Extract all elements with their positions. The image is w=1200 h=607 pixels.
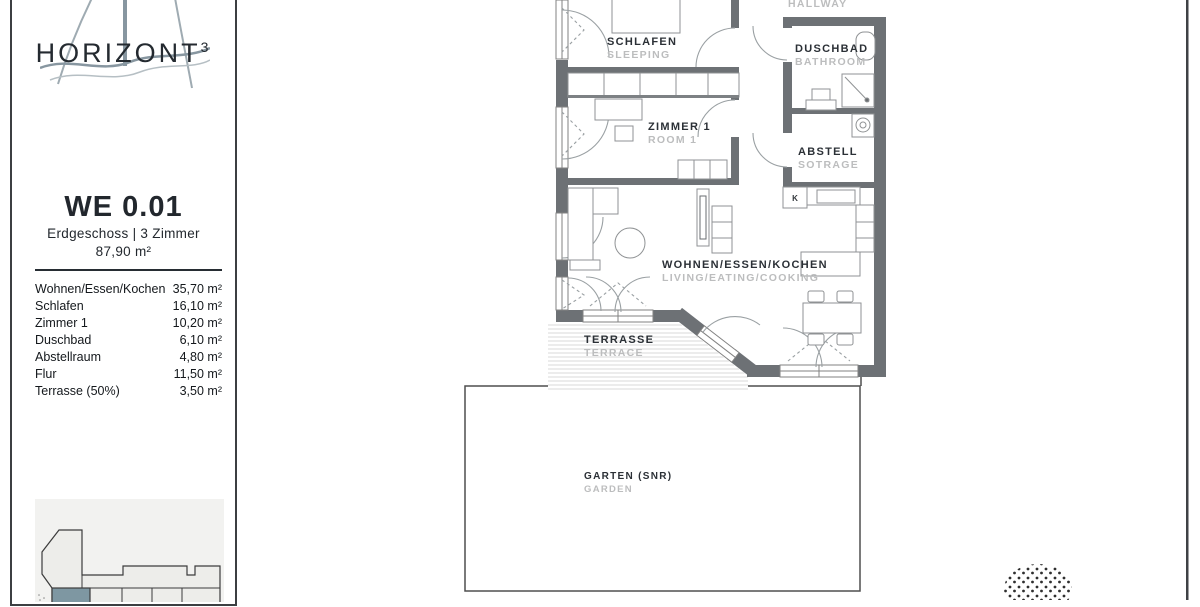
room-name-en: ROOM 1 — [648, 134, 711, 147]
room-label: Abstellraum — [35, 349, 101, 366]
room-label-garten: GARTEN (SNR) GARDEN — [584, 470, 672, 496]
shower-icon — [842, 74, 874, 107]
room-label: Wohnen/Essen/Kochen — [35, 281, 165, 298]
room-name-en: TERRACE — [584, 347, 654, 360]
brand-exponent: 3 — [201, 39, 212, 55]
room-label-duschbad: DUSCHBAD BATHROOM — [795, 43, 868, 69]
building-footprint-icon — [35, 499, 224, 602]
table-row: Terrasse (50%) 3,50 m² — [35, 383, 222, 400]
room-name-en: GARDEN — [584, 483, 672, 496]
bed-icon — [612, 0, 680, 33]
kitchen-counter-icon — [807, 187, 874, 252]
table-row: Wohnen/Essen/Kochen 35,70 m² — [35, 281, 222, 298]
room-label-wohnen: WOHNEN/ESSEN/KOCHEN LIVING/EATING/COOKIN… — [662, 259, 828, 285]
dining-table-icon — [803, 303, 861, 333]
unit-total-area: 87,90 m² — [12, 244, 235, 259]
room-name-en: SLEEPING — [607, 49, 677, 62]
washbasin-icon — [806, 89, 836, 110]
table-row: Zimmer 1 10,20 m² — [35, 315, 222, 332]
room-label-schlafen: SCHLAFEN SLEEPING — [607, 36, 677, 62]
room-area: 4,80 m² — [180, 349, 222, 366]
bed-icon — [595, 99, 642, 120]
table-row: Abstellraum 4,80 m² — [35, 349, 222, 366]
room-area: 3,50 m² — [180, 383, 222, 400]
room-label: Terrasse (50%) — [35, 383, 120, 400]
unit-subtitle: Erdgeschoss | 3 Zimmer — [12, 226, 235, 241]
room-area: 11,50 m² — [174, 366, 222, 383]
room-name-de: TERRASSE — [584, 334, 654, 347]
room-name-de: ABSTELL — [798, 146, 859, 159]
room-name-en: LIVING/EATING/COOKING — [662, 272, 828, 285]
brand-text: HORIZONT — [36, 38, 201, 68]
room-label-terrasse: TERRASSE TERRACE — [584, 334, 654, 360]
room-label-hallway: HALLWAY — [788, 0, 847, 11]
room-label: Duschbad — [35, 332, 91, 349]
washing-machine-icon — [852, 114, 874, 137]
room-label: Schlafen — [35, 298, 84, 315]
room-name-de: ZIMMER 1 — [648, 121, 711, 134]
room-label-abstell: ABSTELL SOTRAGE — [798, 146, 859, 172]
table-row: Schlafen 16,10 m² — [35, 298, 222, 315]
table-row: Duschbad 6,10 m² — [35, 332, 222, 349]
cabinet-icon — [712, 206, 732, 253]
room-area: 6,10 m² — [180, 332, 222, 349]
window-icon — [556, 0, 568, 310]
room-name-en: HALLWAY — [788, 0, 847, 11]
tv-board-icon — [697, 189, 709, 246]
table-icon — [615, 126, 633, 141]
brand-name: HORIZONT3 — [12, 38, 235, 69]
room-area-table: Wohnen/Essen/Kochen 35,70 m² Schlafen 16… — [35, 281, 222, 400]
table-row: Flur 11,50 m² — [35, 366, 222, 383]
room-area: 16,10 m² — [173, 298, 222, 315]
room-area: 35,70 m² — [173, 281, 222, 298]
chair-icon — [808, 291, 853, 345]
room-label: Zimmer 1 — [35, 315, 88, 332]
room-name-de: WOHNEN/ESSEN/KOCHEN — [662, 259, 828, 272]
divider-line — [35, 269, 222, 271]
info-sidebar: HORIZONT3 WE 0.01 Erdgeschoss | 3 Zimmer… — [10, 0, 237, 606]
shelf-icon — [678, 160, 727, 179]
unit-header: WE 0.01 Erdgeschoss | 3 Zimmer 87,90 m² — [12, 192, 235, 259]
room-name-de: SCHLAFEN — [607, 36, 677, 49]
room-label-zimmer1: ZIMMER 1 ROOM 1 — [648, 121, 711, 147]
unit-id: WE 0.01 — [12, 192, 235, 222]
room-name-de: DUSCHBAD — [795, 43, 868, 56]
room-name-de: GARTEN (SNR) — [584, 470, 672, 483]
site-plan-minimap — [35, 499, 224, 602]
page-border-line — [1186, 0, 1189, 600]
wardrobe-icon — [568, 73, 739, 98]
room-label: Flur — [35, 366, 57, 383]
room-name-en: SOTRAGE — [798, 159, 859, 172]
room-name-en: BATHROOM — [795, 56, 868, 69]
room-area: 10,20 m² — [173, 315, 222, 332]
shrub-icon — [1004, 564, 1072, 600]
fridge-marker: K — [784, 189, 806, 207]
sofa-icon — [568, 188, 618, 270]
coffee-table-icon — [615, 228, 645, 258]
